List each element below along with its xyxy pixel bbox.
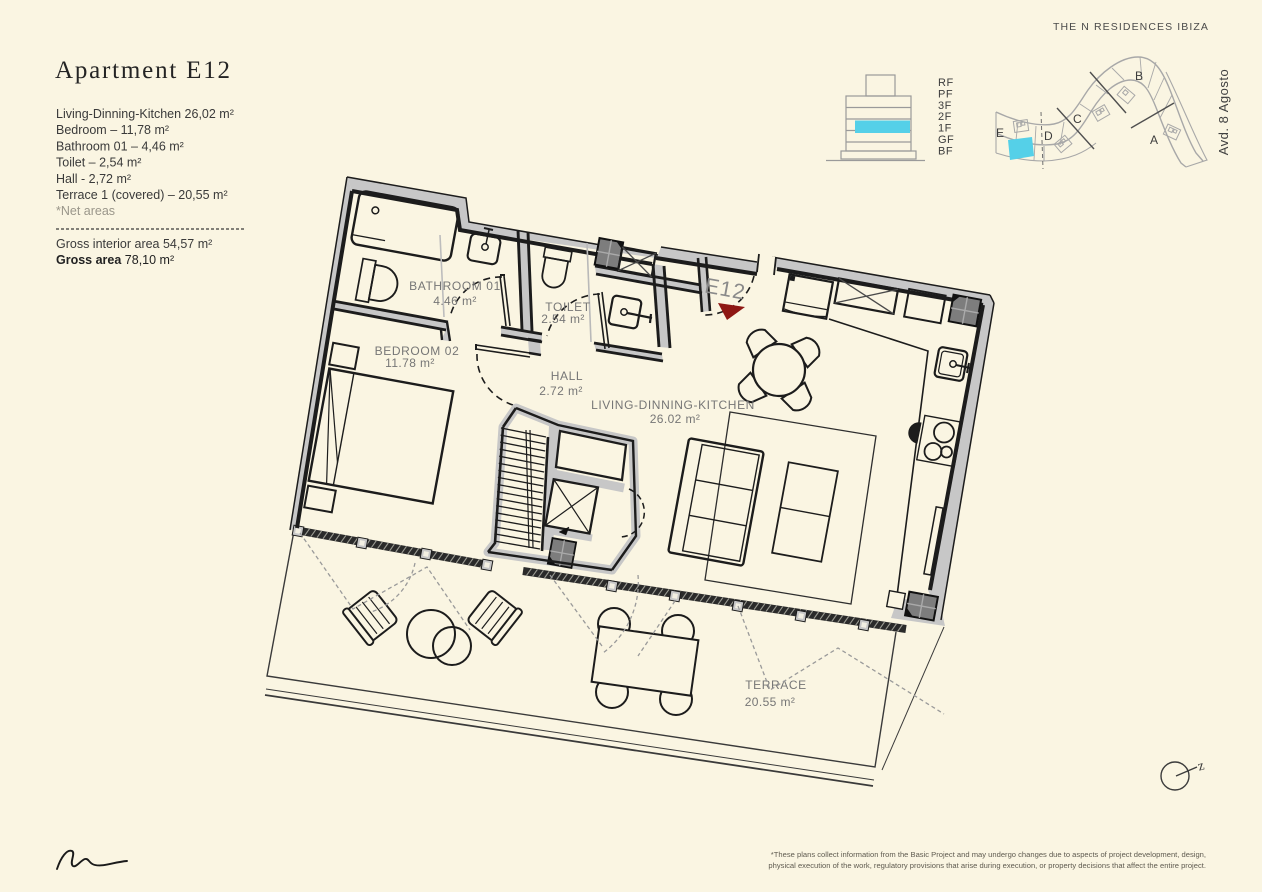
- svg-text:Gross area 78,10 m²: Gross area 78,10 m²: [56, 253, 174, 267]
- svg-text:THE N RESIDENCES IBIZA: THE N RESIDENCES IBIZA: [1053, 21, 1209, 33]
- svg-text:4.46 m²: 4.46 m²: [433, 294, 476, 308]
- svg-text:*These plans collect informati: *These plans collect information from th…: [771, 850, 1206, 859]
- svg-text:20.55 m²: 20.55 m²: [745, 695, 796, 709]
- svg-text:B: B: [1135, 69, 1143, 83]
- svg-text:Apartment E12: Apartment E12: [55, 57, 232, 84]
- svg-text:TERRACE: TERRACE: [745, 678, 807, 692]
- svg-text:1F: 1F: [938, 123, 952, 135]
- svg-text:26.02 m²: 26.02 m²: [650, 412, 701, 426]
- svg-text:HALL: HALL: [551, 369, 583, 383]
- svg-text:PF: PF: [938, 88, 953, 100]
- svg-text:Toilet – 2,54 m²: Toilet – 2,54 m²: [56, 156, 141, 170]
- svg-text:BF: BF: [938, 145, 953, 157]
- svg-text:Hall - 2,72 m²: Hall - 2,72 m²: [56, 172, 131, 186]
- svg-text:2F: 2F: [938, 111, 952, 123]
- svg-text:A: A: [1150, 133, 1158, 147]
- svg-text:physical execution of the work: physical execution of the work, regulato…: [768, 861, 1206, 870]
- svg-text:2.72 m²: 2.72 m²: [539, 384, 582, 398]
- svg-text:Bedroom – 11,78 m²: Bedroom – 11,78 m²: [56, 123, 169, 137]
- svg-text:Avd. 8 Agosto: Avd. 8 Agosto: [1216, 69, 1231, 156]
- svg-text:2.54 m²: 2.54 m²: [541, 312, 584, 326]
- svg-text:BATHROOM 01: BATHROOM 01: [409, 279, 501, 293]
- svg-text:D: D: [1044, 129, 1053, 143]
- svg-text:11.78 m²: 11.78 m²: [385, 356, 435, 370]
- svg-text:Bathroom 01 – 4,46 m²: Bathroom 01 – 4,46 m²: [56, 139, 184, 153]
- svg-text:Living-Dinning-Kitchen 26,02 m: Living-Dinning-Kitchen 26,02 m²: [56, 107, 234, 121]
- svg-text:Terrace 1 (covered) – 20,55 m²: Terrace 1 (covered) – 20,55 m²: [56, 188, 228, 202]
- svg-text:3F: 3F: [938, 100, 952, 112]
- svg-text:RF: RF: [938, 77, 954, 89]
- svg-text:LIVING-DINNING-KITCHEN: LIVING-DINNING-KITCHEN: [591, 398, 755, 412]
- svg-text:*Net areas: *Net areas: [56, 204, 115, 218]
- svg-text:E: E: [996, 126, 1004, 140]
- svg-text:C: C: [1073, 112, 1082, 126]
- svg-text:GF: GF: [938, 134, 954, 146]
- svg-text:Gross interior area 54,57 m²: Gross interior area 54,57 m²: [56, 237, 212, 251]
